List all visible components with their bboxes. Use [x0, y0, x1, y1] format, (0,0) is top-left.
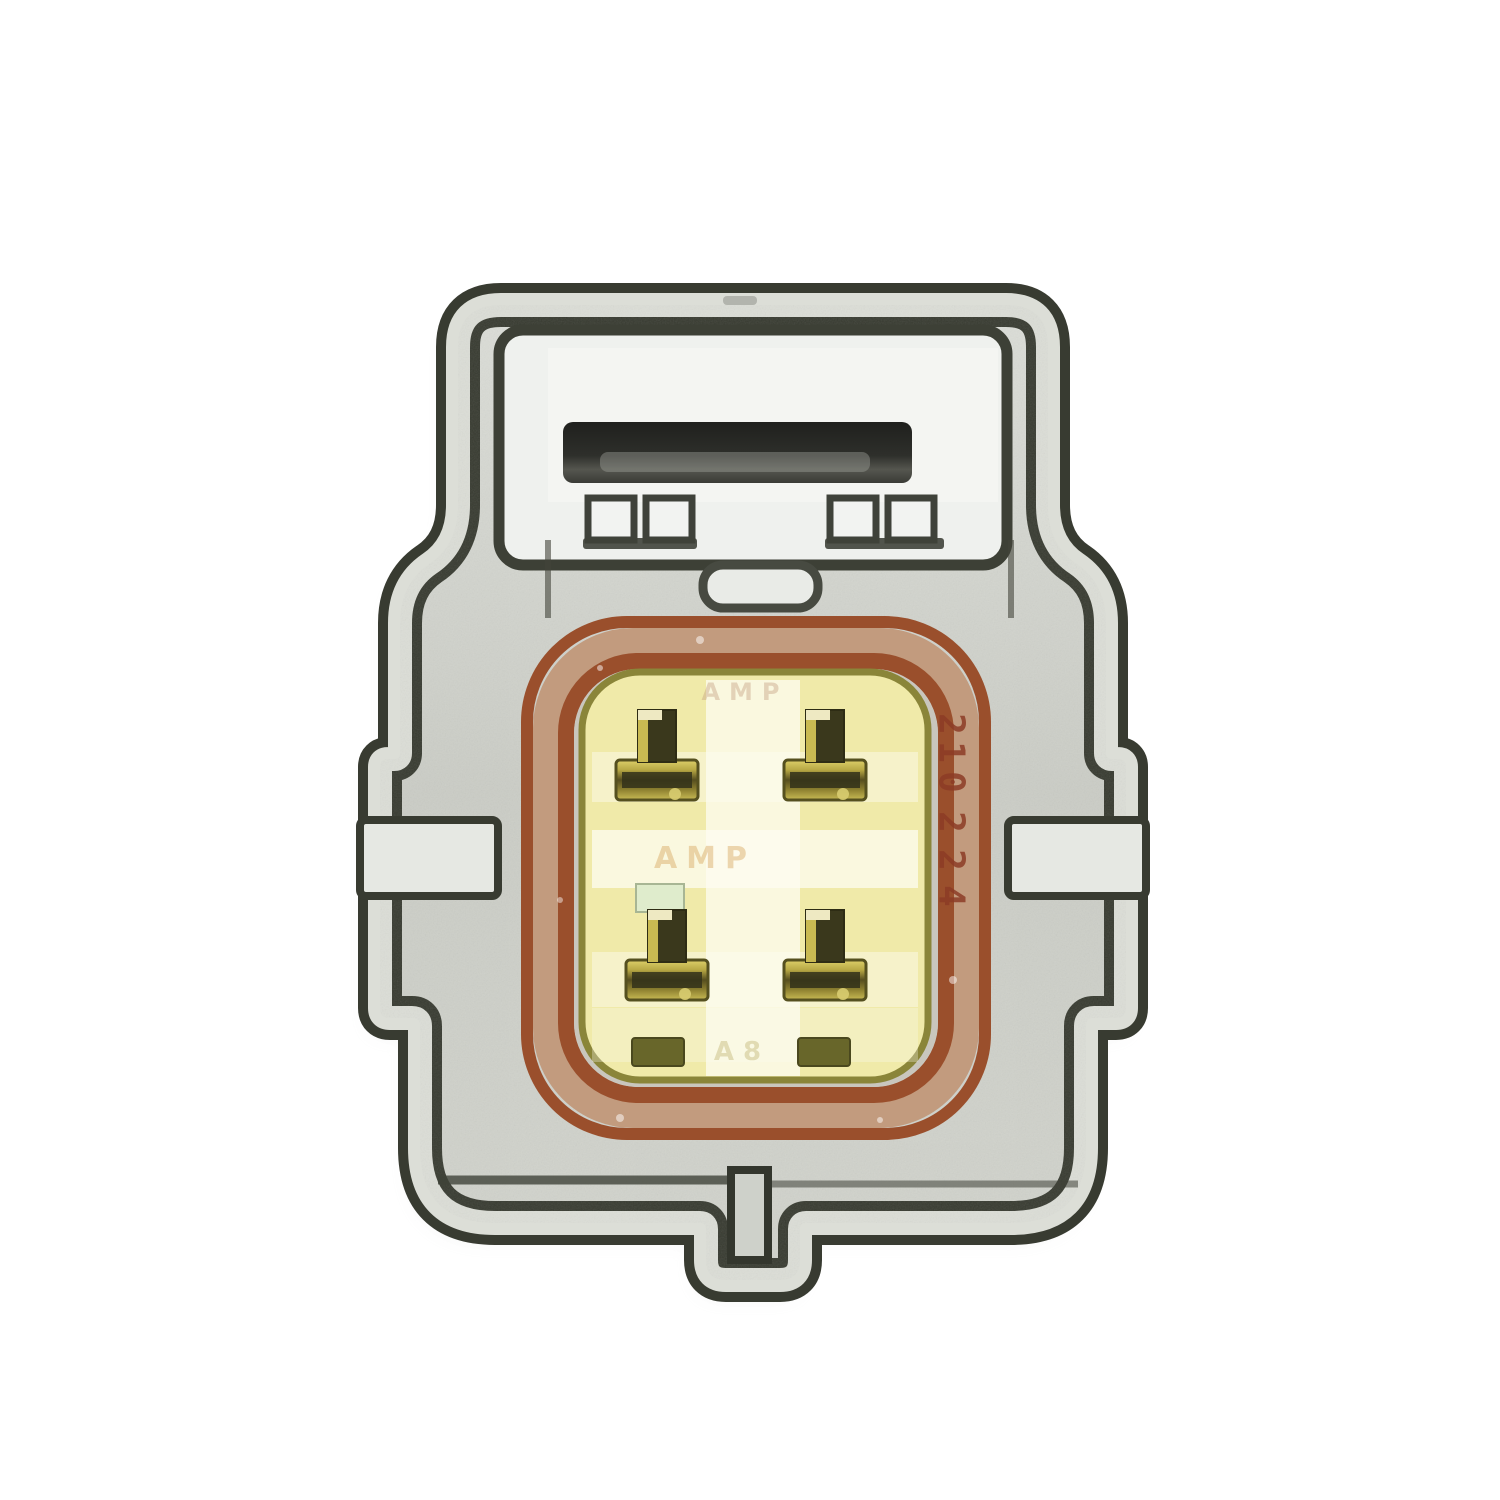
bottom-slot-right: [798, 1038, 850, 1066]
clip-base: [583, 538, 697, 549]
keying-slot-left: [360, 820, 498, 896]
pin-base-core: [632, 972, 702, 988]
speckle: [877, 1117, 883, 1123]
bottom-slot-left: [632, 1038, 684, 1066]
connector-photo: AMP AMP A8: [0, 0, 1500, 1500]
cavity-stamp-bottom: A8: [714, 1037, 770, 1067]
pin-dot: [669, 788, 681, 800]
clip-slot: [588, 498, 634, 540]
date-code-char: 2: [931, 849, 972, 871]
clip-slot: [888, 498, 934, 540]
speckle: [949, 976, 957, 984]
pin-dot: [679, 988, 691, 1000]
top-edge-smudge: [723, 296, 757, 305]
brand-stamp-center: AMP: [654, 841, 756, 876]
test-tab-mark: [636, 884, 684, 912]
pin-blade-glint: [806, 710, 830, 720]
pin-blade-glint: [806, 910, 830, 920]
speckle: [696, 636, 704, 644]
clip-base: [825, 538, 944, 549]
clip-slot: [646, 498, 692, 540]
pin-blade-glint: [648, 910, 672, 920]
speckle: [557, 897, 563, 903]
speckle: [597, 665, 603, 671]
keying-slot-right: [1008, 820, 1146, 896]
bottom-key-slot: [731, 1170, 768, 1260]
latch-clip-right: [825, 498, 944, 549]
side-rib-right: [1008, 540, 1014, 618]
clip-slot: [830, 498, 876, 540]
brand-stamp-top: AMP: [701, 678, 788, 706]
pin-dot: [837, 988, 849, 1000]
pin-base-core: [622, 772, 692, 788]
photo-canvas: AMP AMP A8: [0, 0, 1500, 1500]
speckle: [616, 1114, 624, 1122]
pin-base-core: [790, 972, 860, 988]
date-code-char: 4: [931, 885, 972, 907]
oval-latch-slot: [703, 565, 818, 608]
pin-base-core: [790, 772, 860, 788]
side-rib-left: [545, 540, 551, 618]
date-code-char: 2: [931, 811, 972, 833]
terminal-insert: AMP AMP A8: [582, 672, 928, 1080]
date-code-char: 2: [931, 713, 972, 735]
pin-dot: [837, 788, 849, 800]
latch-bar-sheen: [600, 452, 870, 472]
pin-blade-glint: [638, 710, 662, 720]
date-code-char: 1: [931, 741, 972, 763]
date-code-char: 0: [931, 771, 972, 793]
top-frame: [499, 296, 1014, 618]
